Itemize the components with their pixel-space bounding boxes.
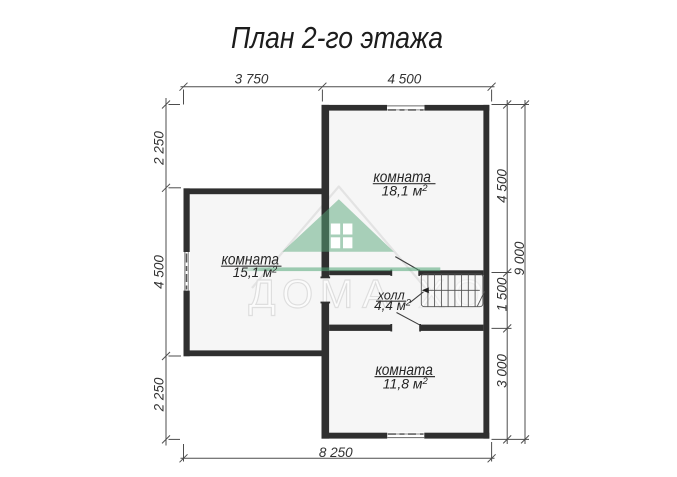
svg-text:4 500: 4 500 <box>152 255 167 289</box>
svg-text:3 000: 3 000 <box>494 354 509 388</box>
svg-text:2 250: 2 250 <box>152 377 167 412</box>
svg-text:1 500: 1 500 <box>494 277 509 311</box>
svg-text:8 250: 8 250 <box>319 445 353 460</box>
svg-text:План 2-го этажа: План 2-го этажа <box>231 20 443 55</box>
svg-text:4,4 м2: 4,4 м2 <box>374 298 411 313</box>
svg-text:О: О <box>282 273 313 317</box>
svg-text:18,1 м2: 18,1 м2 <box>381 183 428 199</box>
svg-text:4 500: 4 500 <box>388 72 422 87</box>
svg-text:Х: Х <box>418 273 445 317</box>
svg-text:9 000: 9 000 <box>512 241 527 275</box>
svg-text:11,8 м2: 11,8 м2 <box>383 375 429 391</box>
svg-text:2 250: 2 250 <box>152 131 167 166</box>
svg-text:3 750: 3 750 <box>235 72 269 87</box>
svg-text:4 500: 4 500 <box>494 169 509 203</box>
